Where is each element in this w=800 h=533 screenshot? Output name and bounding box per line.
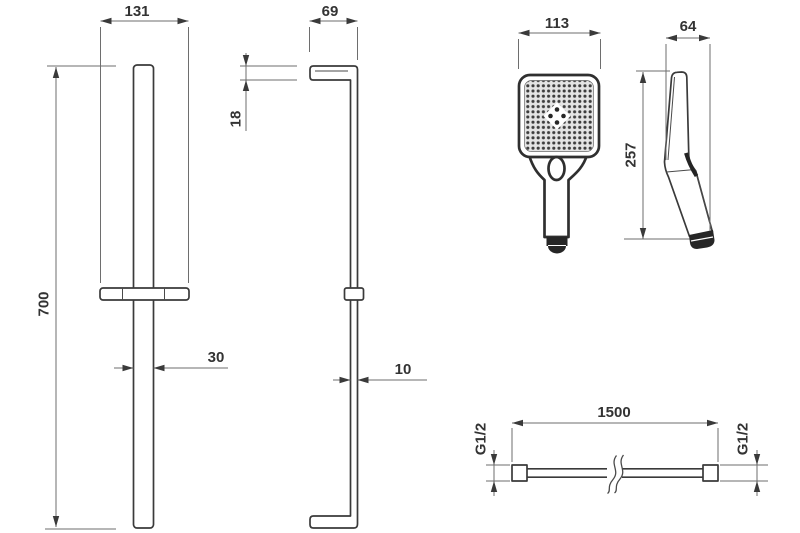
hose-break-symbol <box>608 456 617 494</box>
handshower-front-view <box>519 75 599 254</box>
handshower-side-view <box>665 72 715 249</box>
rail-side-view <box>310 66 364 528</box>
rail-front-view <box>100 65 189 528</box>
dim-hose-length: 1500 <box>512 404 718 462</box>
hose-view <box>512 455 718 494</box>
dim-label-1500: 1500 <box>597 404 630 421</box>
technical-drawing-page: 131 700 30 69 18 <box>0 0 800 533</box>
dim-hose-thread-right: G1/2 <box>720 423 768 496</box>
dim-label-30: 30 <box>208 349 225 366</box>
dim-label-700: 700 <box>36 291 53 316</box>
dim-hose-thread-left: G1/2 <box>473 423 511 496</box>
dim-rail-arm-thickness: 18 <box>228 53 298 131</box>
dim-label-10: 10 <box>395 361 412 378</box>
dim-label-64: 64 <box>680 18 697 35</box>
dim-rail-bar-width: 30 <box>114 349 228 371</box>
dim-handshower-width: 113 <box>519 15 601 69</box>
dim-label-g12-left: G1/2 <box>473 423 490 456</box>
dim-rail-depth: 69 <box>310 3 358 60</box>
shower-set-dimension-drawing: 131 700 30 69 18 <box>0 0 800 533</box>
hook-hole <box>549 157 565 180</box>
dim-label-69: 69 <box>322 3 339 20</box>
dim-label-18: 18 <box>228 111 245 128</box>
dim-label-257: 257 <box>623 142 640 167</box>
dim-label-131: 131 <box>124 3 149 20</box>
dim-label-113: 113 <box>545 15 569 32</box>
dim-label-g12-right: G1/2 <box>735 423 752 456</box>
dim-rail-bar-depth: 10 <box>333 361 427 383</box>
